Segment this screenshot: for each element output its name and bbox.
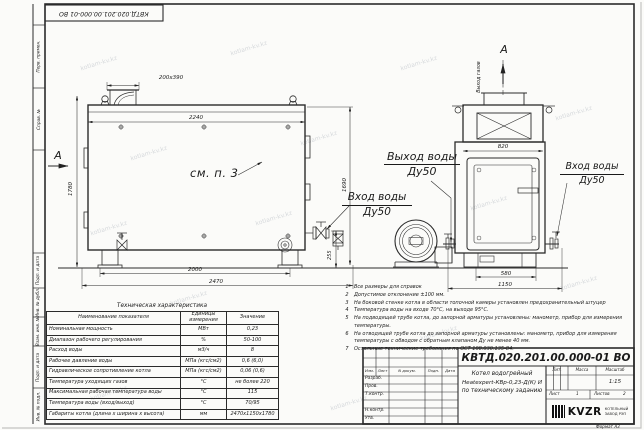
drain-valve-icon: [117, 233, 127, 250]
note-item: 2Допустимое отклонение ±100 мм.: [340, 292, 636, 300]
dim-fitting-height: 255: [328, 250, 334, 260]
inlet-valve-icon: [305, 222, 329, 239]
dimension-lines: [77, 82, 562, 292]
margin-cell: Взам. инв. №: [33, 317, 45, 346]
col-header-data: Дата: [442, 369, 458, 373]
door-handle: [518, 188, 538, 193]
scale-value: 1:15: [596, 379, 634, 385]
table-row: Гидравлическое сопротивление котлаМПа (к…: [47, 367, 279, 378]
top-stamp-text: КВТД.020.201.00.000-01 ВО: [59, 10, 149, 17]
col-header-dokum: N докум.: [389, 369, 425, 373]
dim-height-left: 1780: [68, 182, 74, 196]
note-item: 5На подводящей трубе котла, до запорной …: [340, 315, 636, 331]
part-name-line2: Heatexpert-КВр-0,23-Д(К) И: [457, 380, 547, 386]
water-inlet-label: Вход воды: [342, 192, 412, 206]
gas-outlet-label: Выход газов: [477, 59, 483, 95]
table-row: Температура уходящих газов°Сне более 220: [47, 377, 279, 388]
top-corner-stamp: КВТД.020.201.00.000-01 ВО: [45, 5, 163, 21]
water-outlet-dn-label: Ду50: [384, 166, 460, 178]
dim-top-width: 2240: [176, 115, 216, 121]
table-row: Температура воды (вход/выход)°С70/95: [47, 399, 279, 410]
logo-caption-line2: ЗАВОД РЭП: [605, 412, 629, 416]
kvzr-logo-icon: [552, 405, 565, 418]
spec-table-title: Техническая характеристика: [46, 303, 278, 309]
row-label-prov: Пров.: [365, 385, 378, 390]
margin-cell: Подп. и дата: [33, 346, 45, 388]
water-inlet-dn-label: Ду50: [342, 207, 412, 219]
sheet-number: 1: [576, 392, 579, 397]
notes-list: 1Все размеры для справок 2Допустимое отк…: [340, 284, 636, 354]
logo-text: KVZR: [568, 406, 602, 418]
rivet-marks: [118, 124, 291, 239]
table-row: Расход водым3/ч8: [47, 346, 279, 357]
row-label-utv: Утв.: [365, 417, 374, 422]
part-name-line1: Котел водогрейный: [459, 371, 545, 377]
sheet-label: Лист: [549, 392, 560, 397]
format-label: Формат А3: [596, 425, 620, 430]
leader-lines: [48, 162, 567, 242]
margin-cell: Инв. № дубл.: [33, 288, 45, 317]
margin-cell: Инв. № подл.: [33, 388, 45, 424]
dim-side-base-span: 580: [491, 271, 521, 277]
sheets-total: 2: [623, 392, 626, 397]
sheets-label: Листов: [594, 392, 610, 397]
company-logo: KVZR КОТЕЛЬНЫЙ ЗАВОД РЭП: [546, 400, 634, 423]
note-item: 6На отводящей трубе котла до запорной ар…: [340, 331, 636, 347]
margin-cell: Подп. и дата: [33, 253, 45, 288]
table-row: Габариты котла (длина х ширина х высота)…: [47, 409, 279, 420]
door-bolts: [477, 168, 536, 240]
rear-fitting-icon: [333, 231, 343, 250]
doc-number: КВТД.020.201.00.000-01 ВО: [458, 353, 634, 365]
spec-table: Наименование показателя Единицы измерени…: [46, 311, 279, 420]
logo-caption-line1: КОТЕЛЬНЫЙ: [605, 407, 629, 411]
row-label-razrab: Разраб.: [365, 377, 382, 382]
lit-header: Лит.: [546, 368, 568, 372]
table-row: Диапазон рабочего регулирования%50-100: [47, 335, 279, 346]
spec-col-header: Значение: [227, 312, 279, 325]
side-view: [443, 60, 560, 267]
note-item: 4Температура воды на входе 70°С, на выхо…: [340, 307, 636, 315]
dim-base-span: 2000: [180, 267, 210, 273]
part-name-line3: по техническому заданию: [459, 388, 545, 394]
table-row: Номинальная мощностьМВт0,23: [47, 325, 279, 336]
table-row: Рабочее давление водыМПа (кгс/см2)0,6 (6…: [47, 356, 279, 367]
dim-chimney: 200х390: [152, 75, 190, 81]
gas-outlet-stub: [484, 93, 524, 105]
section-label-left: А: [48, 150, 68, 162]
note-item: 3На боковой стенке котла в области топоч…: [340, 300, 636, 308]
row-label-tkontr: Т.контр.: [365, 393, 384, 398]
col-header-izm: Изм.: [363, 369, 376, 373]
water-outlet-label: Выход воды: [384, 151, 460, 165]
dim-overall-length: 2470: [196, 279, 236, 285]
margin-cell: Справ. №: [33, 88, 45, 150]
note-item: 1Все размеры для справок: [340, 284, 636, 292]
drawing-sheet: kotlam-kv.kz kotlam-kv.kz kotlam-kv.kz k…: [0, 0, 644, 430]
dim-side-top-width: 820: [488, 144, 518, 150]
side-eyebolts: [452, 106, 555, 113]
col-header-list: Лист: [376, 369, 389, 373]
dim-height-right: 1690: [342, 178, 348, 192]
water-inlet-right-label: Вход воды: [560, 162, 624, 175]
col-header-podp: Подп.: [425, 369, 442, 373]
section-label-top: А: [494, 44, 514, 56]
margin-cell: Перв. примен.: [33, 25, 45, 88]
water-inlet-right-dn-label: Ду50: [560, 176, 624, 187]
spec-col-header: Единицы измерения: [181, 312, 227, 325]
row-label-nkontr: Н.контр.: [365, 409, 385, 414]
table-row: Максимальная рабочая температура воды°С1…: [47, 388, 279, 399]
spec-col-header: Наименование показателя: [47, 312, 181, 325]
water-inlet-fitting-icon: [545, 232, 560, 249]
ref-note-label: см. п. 3: [190, 167, 238, 180]
scale-header: Масштаб: [596, 368, 634, 372]
mass-header: Масса: [568, 368, 596, 372]
